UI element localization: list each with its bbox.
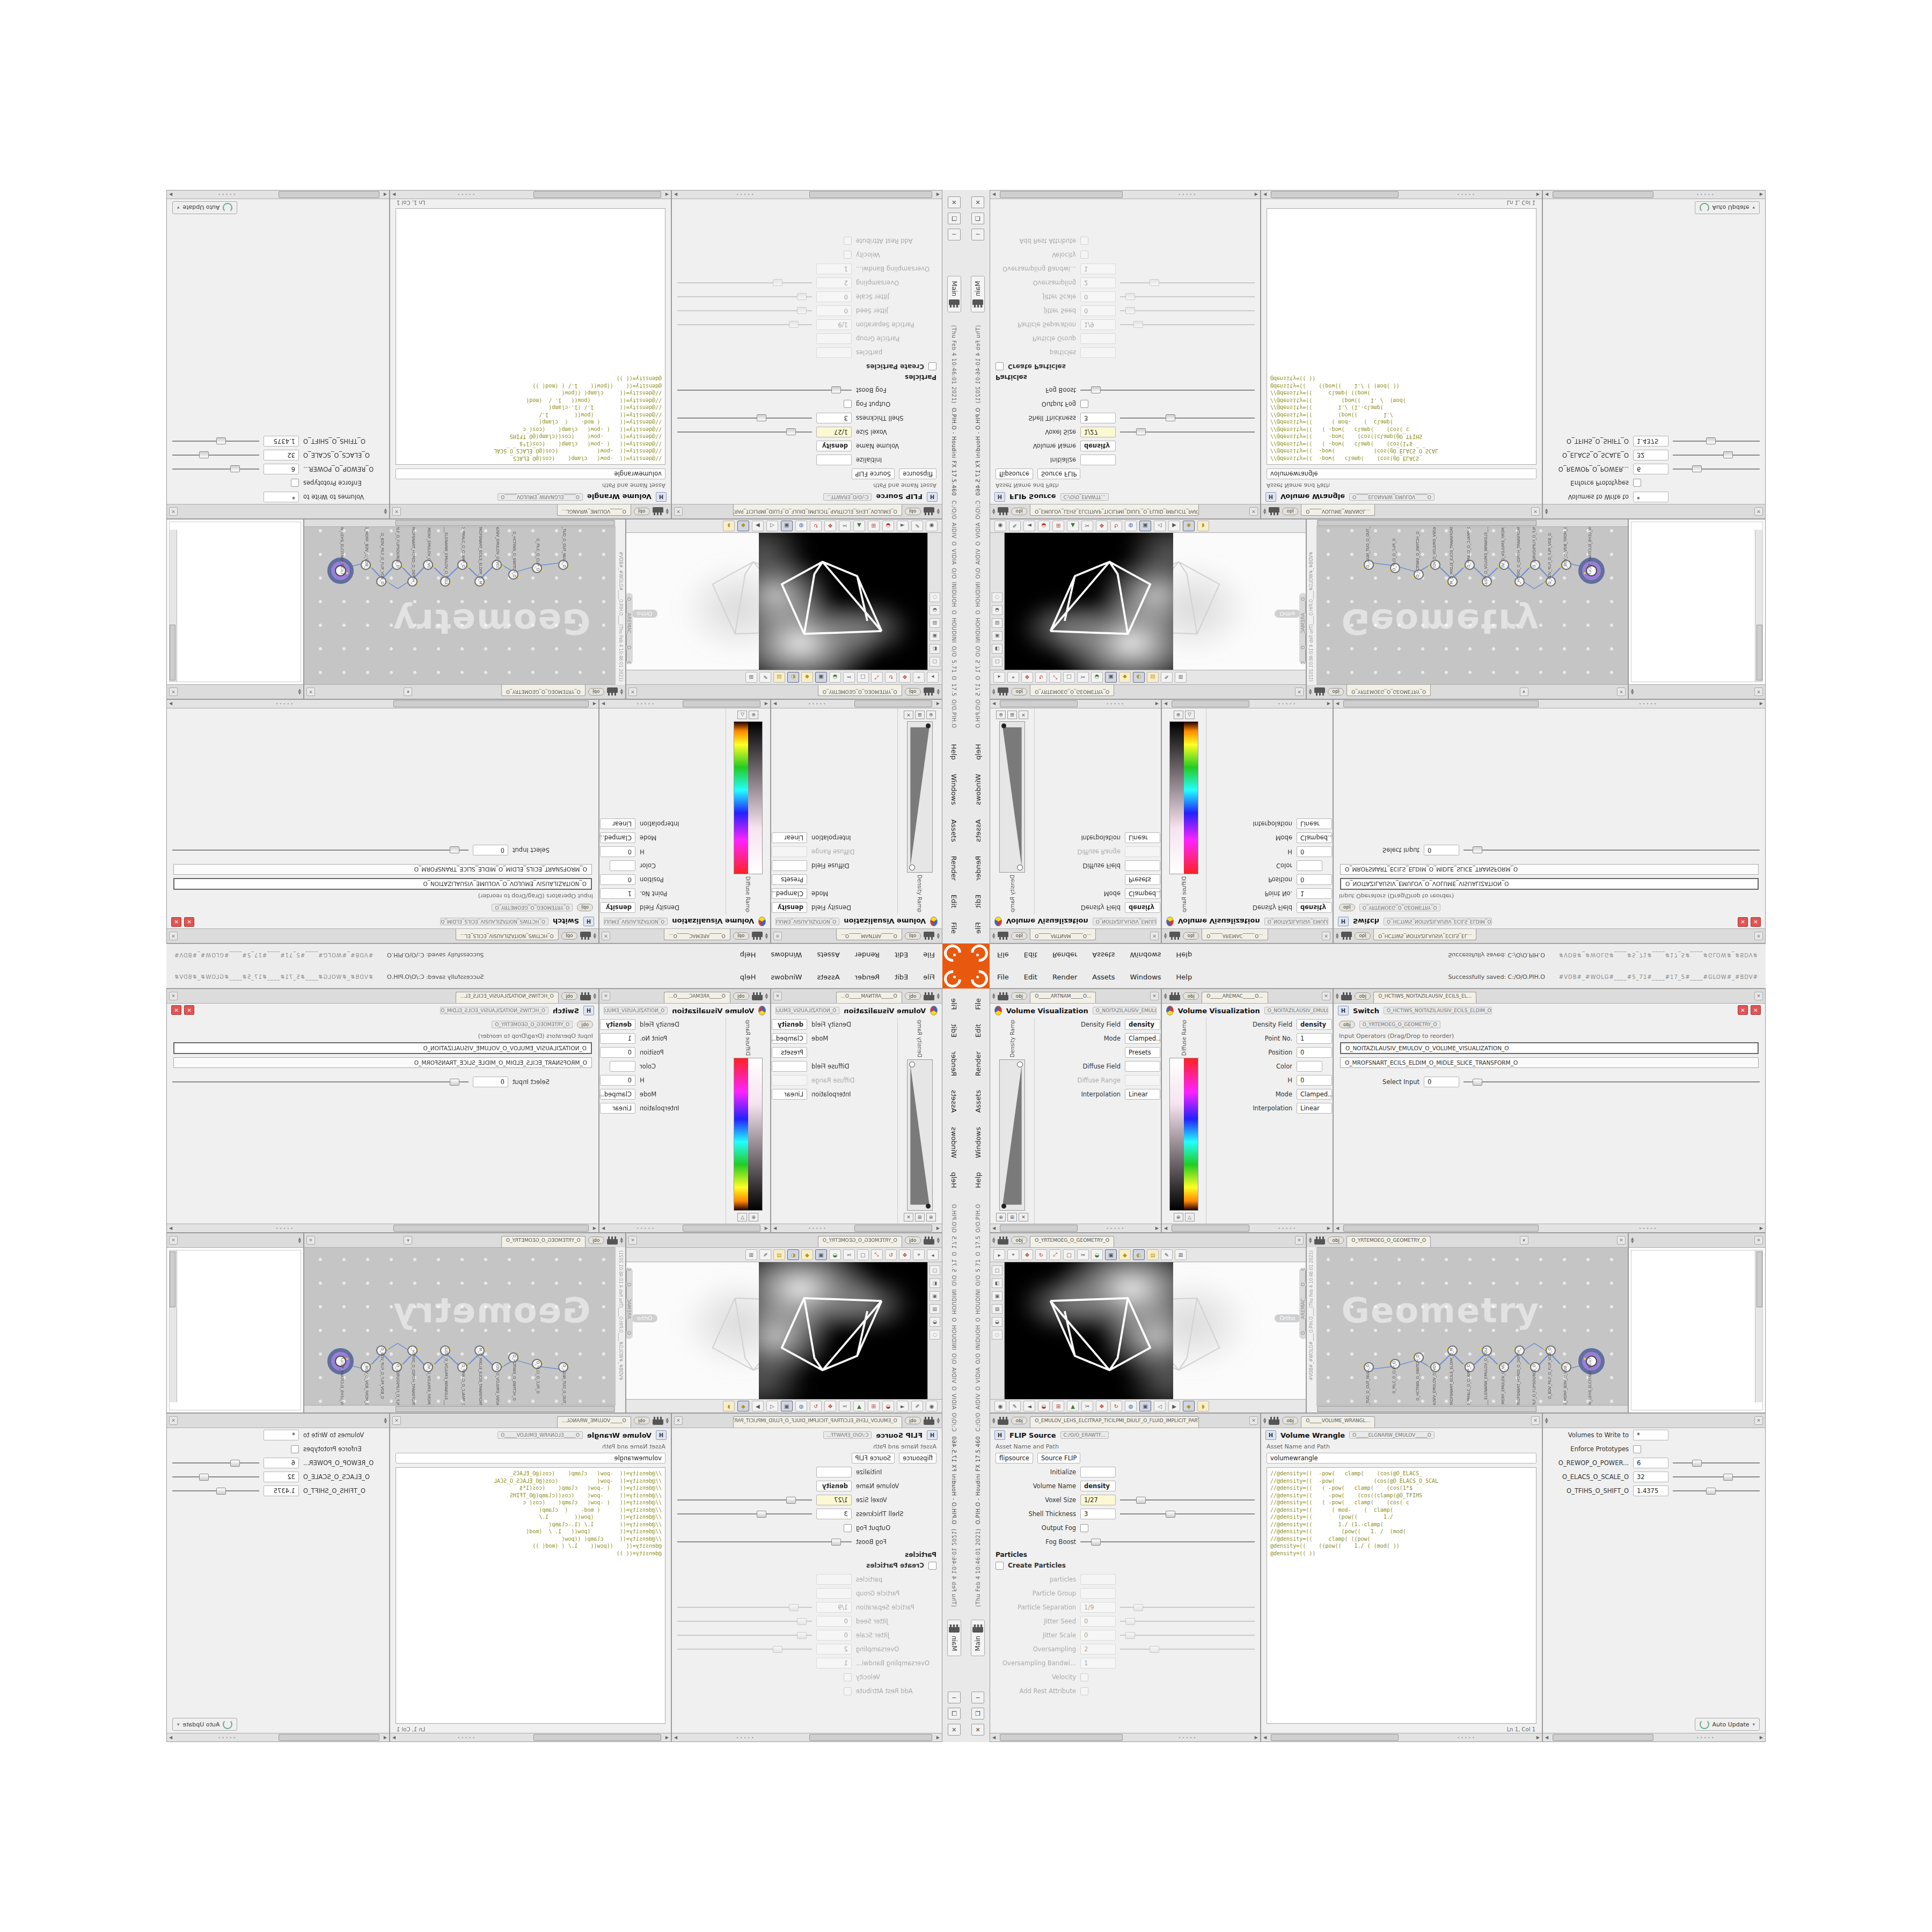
menu-edit[interactable]: Edit (895, 951, 908, 959)
volume-name-field[interactable]: density (816, 1481, 852, 1491)
h-scrollbar[interactable]: ◀∙∙∙∙∙▶ (990, 1224, 1161, 1232)
breadcrumb[interactable]: O_YRTEMOEG_O_GEOMETRY_O (492, 904, 573, 911)
draw-tool-icon[interactable]: ✎ (1161, 1249, 1173, 1260)
pane-arrows-icon[interactable]: ▲▼ (594, 993, 596, 999)
h-scrollbar[interactable]: ◀∙∙∙∙∙▶ (599, 700, 770, 708)
h-scrollbar[interactable]: ◀∙∙∙∙∙▶ (1334, 1224, 1765, 1232)
ramp-add-button[interactable]: ⊕ (926, 711, 936, 719)
view-layout-icon[interactable]: ▤ (930, 1304, 940, 1314)
pane-arrows-icon[interactable]: ▲▼ (620, 689, 623, 695)
pane-arrows-icon[interactable]: ▲▼ (594, 933, 596, 939)
h-scrollbar[interactable]: ◀∙∙∙∙∙▶ (1261, 191, 1542, 199)
pane-arrows-icon[interactable]: ▲▼ (1545, 508, 1548, 515)
h-scrollbar[interactable]: ◀∙∙∙∙∙▶ (167, 191, 389, 199)
volumes-field[interactable]: * (1633, 492, 1668, 502)
pane-arrows-icon[interactable]: ▲▼ (1336, 933, 1338, 939)
manipulator-icon[interactable]: ✥ (824, 521, 836, 531)
pane-close-icon[interactable]: ✕ (306, 687, 315, 696)
view-layout-icon[interactable]: ◒ (992, 1317, 1002, 1327)
ramp-point-end[interactable] (909, 865, 915, 870)
menu-render[interactable]: Render (855, 973, 880, 981)
pane-tab-mantra[interactable]: O_____ARTNAM_____O... (836, 992, 902, 1003)
position-input[interactable]: 0 (1297, 874, 1332, 885)
node-type-field[interactable]: volumewrangle (396, 469, 665, 479)
ramp-grid-button[interactable]: ⊞ (915, 711, 925, 719)
grid-snap-icon[interactable]: ⊞ (1052, 521, 1064, 531)
grid-tool-icon[interactable]: ⊞ (745, 1249, 757, 1260)
pane-arrows-icon[interactable]: ▲▼ (992, 1417, 995, 1424)
obj-context-badge[interactable]: obj (634, 1417, 650, 1424)
view-layout-icon[interactable]: □ (930, 1265, 940, 1275)
param-field[interactable]: 1/9 (1080, 319, 1116, 330)
menu-file[interactable]: File (997, 973, 1009, 981)
pane-close-icon[interactable]: ✕ (1754, 687, 1763, 696)
node-type-field[interactable]: flipsource (899, 469, 936, 479)
plane-icon[interactable]: ◁ (1154, 1401, 1166, 1411)
color-swatch[interactable] (610, 1061, 635, 1072)
close-button[interactable]: ✕ (948, 196, 961, 208)
output-fog-checkbox[interactable] (1080, 400, 1088, 408)
input-source-field[interactable]: Source FLIP (1037, 469, 1081, 479)
close-button[interactable]: ✕ (971, 196, 984, 208)
obj-context-badge[interactable]: obj (1282, 508, 1298, 515)
select-input-slider[interactable] (1463, 1078, 1760, 1086)
menu-file[interactable]: File (974, 998, 982, 1010)
ramp-add-button[interactable]: ⊕ (1174, 711, 1183, 719)
view-layout-icon[interactable]: ◌ (992, 592, 1002, 602)
voxel-size-slider[interactable] (1120, 1496, 1255, 1504)
switch-input-item[interactable]: O_NOITAZILAUSIV_EMULOV_O_VOLUME_VISUALIZ… (173, 1042, 592, 1054)
shift-slider[interactable] (1673, 1487, 1760, 1495)
pane-arrows-icon[interactable]: ▲▼ (1263, 508, 1266, 515)
manipulator-icon[interactable]: ✥ (1096, 1401, 1108, 1411)
param-slider[interactable] (677, 1631, 812, 1639)
snap-tool-icon[interactable]: ◒ (829, 672, 841, 683)
hsv-h-input[interactable]: 0 (600, 846, 635, 857)
fog-boost-slider[interactable] (677, 1538, 852, 1546)
pane-tab-wrangle[interactable]: O_____VOLUME_WRANGL... (1301, 1416, 1375, 1428)
panel-path-field[interactable]: C:/O/O_ERAWTF... (823, 1431, 872, 1439)
presets-button[interactable]: Presets (772, 1047, 807, 1058)
param-field[interactable]: 0 (1080, 1630, 1116, 1641)
scale-field[interactable]: 32 (264, 450, 299, 460)
select-tool-icon[interactable]: ▸ (993, 1249, 1005, 1260)
pane-close-icon[interactable]: ✕ (1249, 507, 1258, 516)
h-scrollbar[interactable]: ◀∙∙∙∙∙▶ (390, 1733, 671, 1741)
initialize-field[interactable] (1080, 455, 1116, 465)
lantern-icon[interactable]: ◗ (723, 521, 735, 531)
scissors-icon[interactable]: ✂ (1081, 521, 1093, 531)
param-field[interactable] (1080, 333, 1116, 344)
shell-thickness-field[interactable]: 3 (1080, 1509, 1116, 1519)
param-slider[interactable] (1120, 307, 1255, 314)
ramp-point-start[interactable] (1001, 723, 1006, 728)
obj-context-badge[interactable]: obj (1339, 1021, 1355, 1028)
shade-view-icon[interactable]: ▤ (773, 1249, 785, 1260)
obj-context-badge[interactable]: obj (733, 992, 749, 1000)
param-slider[interactable] (677, 1618, 812, 1625)
minimize-button[interactable]: − (948, 229, 961, 240)
oned-icon[interactable]: ▣ (1139, 521, 1151, 531)
scale-field[interactable]: 32 (1633, 450, 1668, 460)
red-close-icon[interactable]: ✕ (1751, 1005, 1761, 1015)
shade-view-icon[interactable]: ▤ (773, 672, 785, 683)
pane-tab-geometry[interactable]: O_YRTEMOEG_O_GEOMETRY_O (818, 685, 902, 696)
pane-arrows-icon[interactable]: ▲▼ (992, 689, 995, 695)
param-field[interactable] (1080, 1588, 1116, 1599)
switch-input-item[interactable]: O_NOITAZILAUSIV_EMULOV_O_VOLUME_VISUALIZ… (173, 878, 592, 890)
menu-help[interactable]: Help (1176, 951, 1192, 959)
view-layout-icon[interactable]: □ (992, 657, 1002, 667)
interpolation-select[interactable]: Linear (1125, 832, 1160, 843)
network-h-scrollbar[interactable] (304, 519, 616, 527)
pane-close-icon[interactable]: ✕ (1295, 1236, 1304, 1245)
diffuse-field-input[interactable] (772, 860, 807, 871)
pane-close-icon[interactable]: ✕ (1754, 1416, 1763, 1425)
menu-edit[interactable]: Edit (950, 895, 958, 908)
menu-file[interactable]: File (923, 951, 935, 959)
orbit-icon[interactable]: ↻ (810, 1401, 822, 1411)
menu-windows[interactable]: Windows (1130, 973, 1161, 981)
interpolation-select[interactable]: Linear (1125, 1089, 1160, 1100)
param-field[interactable]: 1/9 (816, 1602, 852, 1613)
pane-arrows-icon[interactable]: ▲▼ (384, 508, 387, 515)
minimize-button[interactable]: − (971, 1692, 984, 1703)
voxel-size-slider[interactable] (677, 428, 812, 436)
param-slider[interactable] (1120, 279, 1255, 287)
shift-field[interactable]: 1.4375 (1633, 1485, 1668, 1496)
shade-diamond-icon[interactable]: ◆ (1183, 1401, 1195, 1411)
switch-input-item[interactable]: O_NOITAZILAUSIV_EMULOV_O_VOLUME_VISUALIZ… (1340, 878, 1759, 890)
view-layout-icon[interactable]: □ (992, 1265, 1002, 1275)
grid-tool-icon[interactable]: ⊞ (745, 672, 757, 683)
prev-icon[interactable]: ◄ (1023, 521, 1035, 531)
handles-tool-icon[interactable]: ⌖ (1007, 672, 1019, 683)
ramp-grid-button[interactable]: ⊞ (1007, 1213, 1017, 1221)
pane-arrows-icon[interactable]: ▲▼ (298, 1237, 301, 1243)
pane-tab-flip[interactable]: O_EMULOV_LEHS_ELCITRAP_TICILPMI_DIULF_O_… (1030, 504, 1199, 516)
magnet-icon[interactable]: ◒ (1038, 1401, 1050, 1411)
menu-render[interactable]: Render (855, 951, 880, 959)
view-layout-icon[interactable]: ▤ (992, 618, 1002, 628)
ramp-delete-button[interactable]: ✕ (1019, 1213, 1028, 1221)
scale-field[interactable]: 32 (264, 1472, 299, 1482)
oned-icon[interactable]: ▣ (1139, 1401, 1151, 1411)
restore-button[interactable]: ❐ (948, 213, 961, 224)
pane-tab-switch[interactable]: O_HCTIWS_NOITAZILAUSIV_ECILS_EL... (1373, 929, 1476, 940)
sphere-ring-icon[interactable]: ◍ (795, 521, 807, 531)
view-tool-icon[interactable]: ▣ (1105, 672, 1117, 683)
diffuse-range-input[interactable] (772, 1075, 807, 1086)
network-canvas[interactable]: Geometry O_EMULOV_LEHS_ELCITRAP_TICILPMI… (1316, 1248, 1628, 1413)
view-layout-icon[interactable]: ◌ (930, 592, 940, 602)
node-type-field[interactable]: volumewrangle (396, 1453, 665, 1463)
pane-close-icon[interactable]: ✕ (773, 992, 782, 1000)
color-swatch[interactable] (610, 860, 635, 871)
pane-arrows-icon[interactable]: ▲▼ (298, 689, 301, 695)
view-layout-icon[interactable]: ◧ (992, 644, 1002, 654)
param-field[interactable]: 1 (816, 264, 852, 274)
pane-tab-switch[interactable]: O_HCTIWS_NOITAZILAUSIV_ECILS_EL... (456, 992, 559, 1003)
param-slider[interactable] (1120, 321, 1255, 328)
pane-tab-mantra[interactable]: O_____ARTNAM_____O... (1030, 992, 1096, 1003)
point-no-input[interactable]: 1 (1297, 1033, 1332, 1044)
menu-windows[interactable]: Windows (771, 973, 802, 981)
pin-icon[interactable]: ▾ (404, 687, 412, 696)
scale-slider[interactable] (172, 1473, 259, 1481)
view-layout-icon[interactable]: ◒ (930, 605, 940, 615)
view-tool-icon[interactable]: ▣ (815, 672, 827, 683)
density-ramp-widget[interactable]: Density Ramp ⊕ ⊞ ✕ (897, 708, 942, 914)
shell-thickness-field[interactable]: 3 (816, 1509, 852, 1519)
obj-context-badge[interactable]: obj (588, 1236, 604, 1244)
color-swatch[interactable] (1297, 1061, 1322, 1072)
red-close-icon[interactable]: ✕ (184, 1005, 194, 1015)
sphere-ring-icon[interactable]: ◍ (1125, 521, 1137, 531)
pane-close-icon[interactable]: ✕ (169, 1416, 178, 1425)
menu-file[interactable]: File (923, 973, 935, 981)
minimize-button[interactable]: − (971, 229, 984, 240)
param-field[interactable]: 0 (816, 1616, 852, 1627)
auto-update-control[interactable]: Auto Update ▾ (172, 201, 237, 214)
ramp-point-start[interactable] (926, 723, 931, 728)
menu-edit[interactable]: Edit (1024, 951, 1037, 959)
shift-field[interactable]: 1.4375 (1633, 436, 1668, 447)
h-scrollbar[interactable]: ◀∙∙∙∙∙▶ (167, 1224, 598, 1232)
pane-arrows-icon[interactable]: ▲▼ (992, 508, 995, 515)
ramp-add-button[interactable]: ⊕ (996, 1213, 1006, 1221)
diffuse-ramp-widget[interactable]: Diffuse Ramp ⊕ △ (1162, 708, 1206, 914)
volume-render-dark[interactable] (759, 533, 927, 670)
point-no-input[interactable]: 1 (1297, 888, 1332, 899)
ramp-point-start[interactable] (926, 1204, 931, 1209)
pane-arrows-icon[interactable]: ▲▼ (1631, 689, 1634, 695)
orbit-icon[interactable]: ↻ (1110, 1401, 1122, 1411)
select-input-slider[interactable] (172, 846, 469, 854)
shift-slider[interactable] (172, 437, 259, 445)
scissors-icon[interactable]: ✂ (1081, 1401, 1093, 1411)
pane-arrows-icon[interactable]: ▲▼ (1631, 1237, 1634, 1243)
ramp-delete-button[interactable]: ✕ (904, 1213, 913, 1221)
param-field[interactable] (1080, 1574, 1116, 1585)
menu-windows[interactable]: Windows (771, 951, 802, 959)
pane-arrows-icon[interactable]: ▲▼ (1336, 993, 1338, 999)
power-field[interactable]: 6 (264, 464, 299, 474)
pane-close-icon[interactable]: ✕ (1754, 992, 1763, 1000)
viewport-canvas[interactable]: Ortho O_____AREMAC_____O_____CAMERA_____… (626, 533, 927, 670)
obj-context-badge[interactable]: obj (577, 1021, 593, 1028)
lantern-icon[interactable]: ◆ (801, 1249, 813, 1260)
grayscale-ramp-bar[interactable] (1170, 722, 1184, 874)
slate-icon[interactable]: ◉ (926, 521, 938, 531)
lantern-icon[interactable]: ◆ (1119, 672, 1131, 683)
h-scrollbar[interactable]: ◀∙∙∙∙∙▶ (990, 700, 1161, 708)
breadcrumb[interactable]: O_YRTEMOEG_O_GEOMETRY_O (1359, 904, 1440, 911)
add-rest-checkbox[interactable] (1080, 237, 1088, 245)
param-slider[interactable] (1120, 1618, 1255, 1625)
menu-file[interactable]: File (950, 998, 958, 1010)
param-field[interactable] (1080, 347, 1116, 358)
h-scrollbar[interactable]: ◀∙∙∙∙∙▶ (990, 1733, 1260, 1741)
network-h-scrollbar[interactable] (304, 1405, 616, 1413)
draw-tool-icon[interactable]: ✎ (759, 672, 771, 683)
param-field[interactable] (816, 1588, 852, 1599)
plane-icon[interactable]: ◁ (766, 1401, 778, 1411)
initialize-field[interactable] (816, 455, 852, 465)
h-scrollbar[interactable]: ◀∙∙∙∙∙▶ (771, 1224, 942, 1232)
menu-windows[interactable]: Windows (974, 1127, 982, 1158)
menu-edit[interactable]: Edit (895, 973, 908, 981)
pane-arrows-icon[interactable]: ▲▼ (1164, 993, 1167, 999)
ramp-add-button[interactable]: ⊕ (1174, 1213, 1183, 1221)
menu-file[interactable]: File (950, 922, 958, 934)
shell-thickness-field[interactable]: 3 (816, 413, 852, 423)
pane-close-icon[interactable]: ✕ (773, 932, 782, 940)
volume-name-field[interactable]: density (816, 441, 852, 451)
menu-edit[interactable]: Edit (1024, 973, 1037, 981)
v-scrollbar[interactable] (170, 1250, 177, 1402)
menu-help[interactable]: Help (740, 951, 756, 959)
move-tool-icon[interactable]: ✥ (899, 1249, 911, 1260)
param-slider[interactable] (1120, 293, 1255, 301)
grid-snap-icon[interactable]: ⊞ (1052, 1401, 1064, 1411)
pane-tab-wrangle[interactable]: O_____VOLUME_WRANGL... (1301, 504, 1375, 516)
breadcrumb[interactable]: O_YRTEMOEG_O_GEOMETRY_O (1359, 1021, 1440, 1028)
plane-icon[interactable]: ◁ (766, 521, 778, 531)
lantern-icon[interactable]: ◆ (801, 672, 813, 683)
density-field-input[interactable]: density (1297, 902, 1332, 913)
cut-tool-icon[interactable]: ✂ (843, 672, 855, 683)
pane-arrows-icon[interactable]: ▲▼ (937, 508, 940, 515)
param-slider[interactable] (677, 321, 812, 328)
slate-icon[interactable]: ◉ (994, 1401, 1006, 1411)
enforce-checkbox[interactable] (1633, 1445, 1641, 1453)
obj-context-badge[interactable]: obj (634, 508, 650, 515)
view-layout-icon[interactable]: ◒ (930, 1317, 940, 1327)
pane-arrows-icon[interactable]: ▲▼ (384, 1417, 387, 1424)
network-breadcrumb[interactable]: O_YRTEMOEG_O_GEOMETRY_O (501, 1236, 586, 1247)
play-icon[interactable]: ▶ (752, 1401, 764, 1411)
volumes-field[interactable]: * (264, 1430, 299, 1440)
menu-file[interactable]: File (974, 922, 982, 934)
presets-button[interactable]: Presets (1125, 1047, 1160, 1058)
menu-help[interactable]: Help (950, 1172, 958, 1188)
ramp-grid-button[interactable]: ⊞ (915, 1213, 925, 1221)
menu-assets[interactable]: Assets (1092, 973, 1115, 981)
shell-thickness-slider[interactable] (677, 414, 812, 422)
obj-context-badge[interactable]: obj (1282, 1417, 1298, 1424)
ramp-add-button[interactable]: ⊕ (749, 1213, 759, 1221)
param-field[interactable]: 2 (816, 1644, 852, 1655)
density-field-input[interactable]: density (772, 902, 807, 913)
volume-render-dark[interactable] (759, 1262, 927, 1399)
pane-close-icon[interactable]: ✕ (392, 1416, 401, 1425)
pane-arrows-icon[interactable]: ▲▼ (992, 993, 995, 999)
create-particles-checkbox[interactable] (928, 1562, 936, 1570)
param-field[interactable]: 2 (1080, 277, 1116, 288)
magnet-icon[interactable]: ◒ (1038, 521, 1050, 531)
pane-close-icon[interactable]: ✕ (1617, 687, 1626, 696)
param-field[interactable]: 2 (1080, 1644, 1116, 1655)
desktop-tab-main[interactable]: Main (947, 1620, 961, 1656)
pane-tab-flip[interactable]: O_EMULOV_LEHS_ELCITRAP_TICILPMI_DIULF_O_… (733, 1416, 902, 1428)
pane-arrows-icon[interactable]: ▲▼ (992, 1237, 995, 1243)
velocity-checkbox[interactable] (844, 251, 852, 259)
create-particles-checkbox[interactable] (996, 363, 1004, 371)
pane-tab-mantra[interactable]: O_____ARTNAM_____O... (836, 929, 902, 940)
empty-canvas[interactable] (169, 522, 301, 682)
restore-button[interactable]: ❐ (971, 1708, 984, 1719)
param-field[interactable]: 1 (1080, 264, 1116, 274)
pane-arrows-icon[interactable]: ▲▼ (937, 1237, 940, 1243)
pin-icon[interactable]: ▾ (1520, 1236, 1528, 1245)
menu-edit[interactable]: Edit (974, 895, 982, 908)
pane-arrows-icon[interactable]: ▲▼ (1263, 1417, 1266, 1424)
switch-input-item[interactable]: O_MROFSNART_ECILS_ELDIM_O_MIDLE_SLICE_TR… (173, 864, 592, 875)
view-layout-icon[interactable]: ▣ (930, 1291, 940, 1301)
pane-tab-camera[interactable]: O_____AREMAC_____O... (1202, 992, 1268, 1003)
position-input[interactable]: 0 (600, 1047, 635, 1058)
v-scrollbar[interactable] (1755, 530, 1762, 682)
panel-path-field[interactable]: C:/O/O_ERAWTF... (1060, 493, 1109, 501)
hsv-h-input[interactable]: 0 (1297, 1075, 1332, 1086)
menu-edit[interactable]: Edit (974, 1024, 982, 1037)
menu-assets[interactable]: Assets (974, 819, 982, 841)
obj-context-badge[interactable]: obj (733, 932, 749, 940)
prev-icon[interactable]: ◄ (897, 1401, 909, 1411)
voxel-size-field[interactable]: 1/27 (1080, 1495, 1116, 1505)
voxel-size-slider[interactable] (677, 1496, 812, 1504)
param-field[interactable] (816, 347, 852, 358)
param-field[interactable]: 1/9 (816, 319, 852, 330)
ramp-tri-button[interactable]: △ (738, 1213, 748, 1221)
power-field[interactable]: 6 (264, 1458, 299, 1468)
scale-tool-icon[interactable]: ⤢ (871, 1249, 883, 1260)
volume-render-light[interactable]: Ortho O_____AREMAC_____O_____CAMERA_____… (626, 1262, 759, 1399)
h-scrollbar[interactable]: ◀∙∙∙∙∙▶ (599, 1224, 770, 1232)
obj-context-badge[interactable]: obj (1011, 508, 1027, 515)
grayscale-ramp-bar[interactable] (1170, 1058, 1184, 1210)
pane-tab-switch[interactable]: O_HCTIWS_NOITAZILAUSIV_ECILS_EL... (1373, 992, 1476, 1003)
h-scrollbar[interactable]: ◀∙∙∙∙∙▶ (672, 191, 942, 199)
axis-icon[interactable]: ▲ (1067, 1401, 1079, 1411)
pane-arrows-icon[interactable]: ▲▼ (1309, 689, 1312, 695)
pane-close-icon[interactable]: ✕ (169, 687, 178, 696)
ramp-point-end[interactable] (1017, 865, 1023, 870)
pane-tab-flip[interactable]: O_EMULOV_LEHS_ELCITRAP_TICILPMI_DIULF_O_… (733, 504, 902, 516)
param-slider[interactable] (677, 293, 812, 301)
menu-render[interactable]: Render (1052, 951, 1077, 959)
voxel-size-field[interactable]: 1/27 (816, 1495, 852, 1505)
network-breadcrumb[interactable]: O_YRTEMOEG_O_GEOMETRY_O (501, 685, 586, 696)
play-icon[interactable]: ▶ (752, 521, 764, 531)
mode-select[interactable]: Clamped... (1297, 1089, 1332, 1100)
cut-tool-icon[interactable]: ✂ (1077, 1249, 1089, 1260)
pane-close-icon[interactable]: ✕ (674, 507, 683, 516)
h-scrollbar[interactable]: ◀∙∙∙∙∙▶ (1162, 700, 1333, 708)
select-input-field[interactable]: 0 (1424, 845, 1459, 855)
pane-arrows-icon[interactable]: ▲▼ (937, 1417, 940, 1424)
empty-canvas[interactable] (1631, 1250, 1763, 1410)
obj-context-badge[interactable]: obj (1011, 932, 1027, 940)
orbit-icon[interactable]: ↻ (810, 521, 822, 531)
obj-context-badge[interactable]: obj (1328, 688, 1344, 696)
param-slider[interactable] (1120, 1631, 1255, 1639)
viewport-canvas[interactable]: Ortho O_____AREMAC_____O_____CAMERA_____… (1005, 1262, 1306, 1399)
empty-canvas[interactable] (169, 1250, 301, 1410)
volume-render-dark[interactable] (1005, 533, 1173, 670)
density-ramp-widget[interactable]: Density Ramp ⊕ ⊞ ✕ (897, 1018, 942, 1224)
